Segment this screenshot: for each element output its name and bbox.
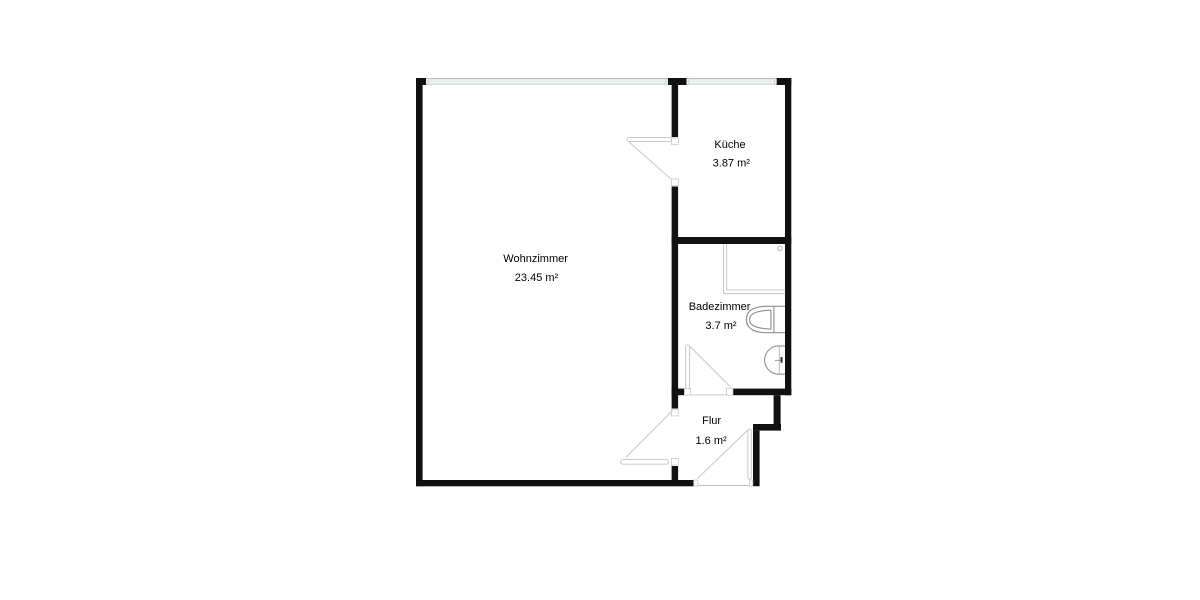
svg-text:23.45 m²: 23.45 m² (515, 272, 559, 284)
svg-text:3.7 m²: 3.7 m² (705, 320, 737, 332)
svg-text:Badezimmer: Badezimmer (689, 301, 751, 313)
svg-text:1.6 m²: 1.6 m² (696, 435, 728, 447)
svg-text:3.87 m²: 3.87 m² (713, 158, 751, 170)
svg-text:Küche: Küche (714, 139, 745, 151)
svg-text:Flur: Flur (702, 415, 721, 427)
svg-text:Wohnzimmer: Wohnzimmer (503, 253, 568, 265)
